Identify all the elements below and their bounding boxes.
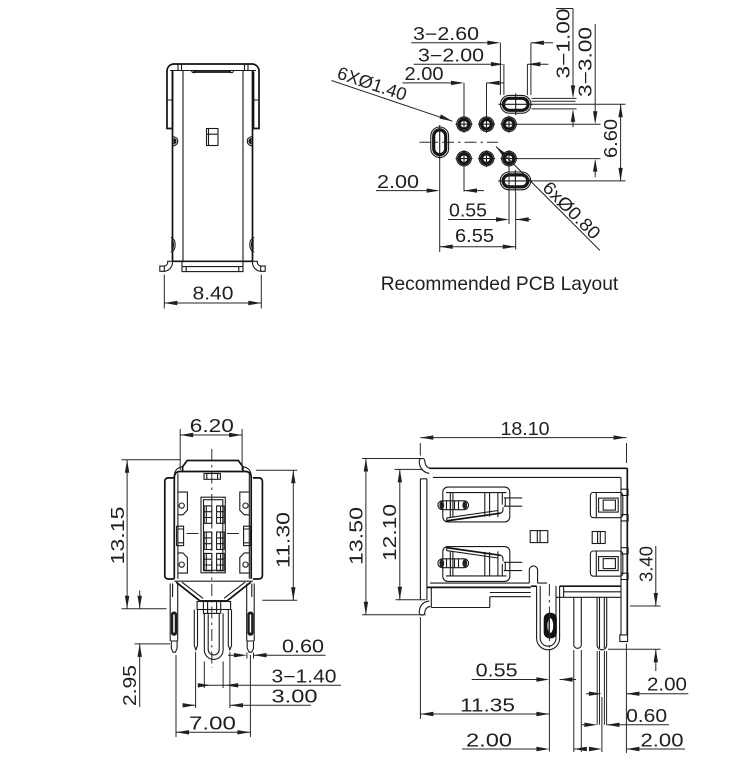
svg-text:11.30: 11.30 bbox=[274, 512, 294, 568]
svg-text:2.00: 2.00 bbox=[405, 64, 444, 84]
svg-text:13.50: 13.50 bbox=[346, 507, 366, 565]
svg-text:3−2.00: 3−2.00 bbox=[418, 45, 484, 65]
svg-text:3−1.40: 3−1.40 bbox=[272, 666, 337, 686]
svg-text:0.55: 0.55 bbox=[449, 201, 487, 221]
svg-text:6.60: 6.60 bbox=[601, 119, 621, 158]
svg-text:2.00: 2.00 bbox=[647, 675, 687, 695]
svg-text:18.10: 18.10 bbox=[501, 419, 550, 439]
svg-text:3−3.00: 3−3.00 bbox=[576, 27, 596, 97]
svg-text:2.00: 2.00 bbox=[466, 731, 512, 751]
svg-text:3.40: 3.40 bbox=[636, 546, 656, 582]
svg-text:6.55: 6.55 bbox=[455, 226, 494, 246]
svg-text:6.20: 6.20 bbox=[190, 416, 234, 436]
svg-text:0.55: 0.55 bbox=[476, 661, 518, 681]
svg-text:8.40: 8.40 bbox=[193, 284, 234, 304]
svg-text:2.95: 2.95 bbox=[120, 665, 140, 706]
svg-text:12.10: 12.10 bbox=[380, 504, 400, 561]
svg-text:3−2.60: 3−2.60 bbox=[413, 24, 479, 44]
svg-text:Recommended PCB Layout: Recommended PCB Layout bbox=[381, 273, 619, 295]
svg-text:3−1.00: 3−1.00 bbox=[554, 9, 574, 79]
svg-text:0.60: 0.60 bbox=[282, 636, 324, 656]
svg-text:2.00: 2.00 bbox=[377, 172, 419, 192]
svg-text:7.00: 7.00 bbox=[189, 714, 236, 734]
svg-text:13.15: 13.15 bbox=[108, 507, 128, 565]
svg-text:3.00: 3.00 bbox=[272, 686, 318, 706]
svg-text:2.00: 2.00 bbox=[641, 731, 684, 751]
svg-text:11.35: 11.35 bbox=[460, 695, 515, 715]
svg-text:0.60: 0.60 bbox=[626, 706, 667, 726]
